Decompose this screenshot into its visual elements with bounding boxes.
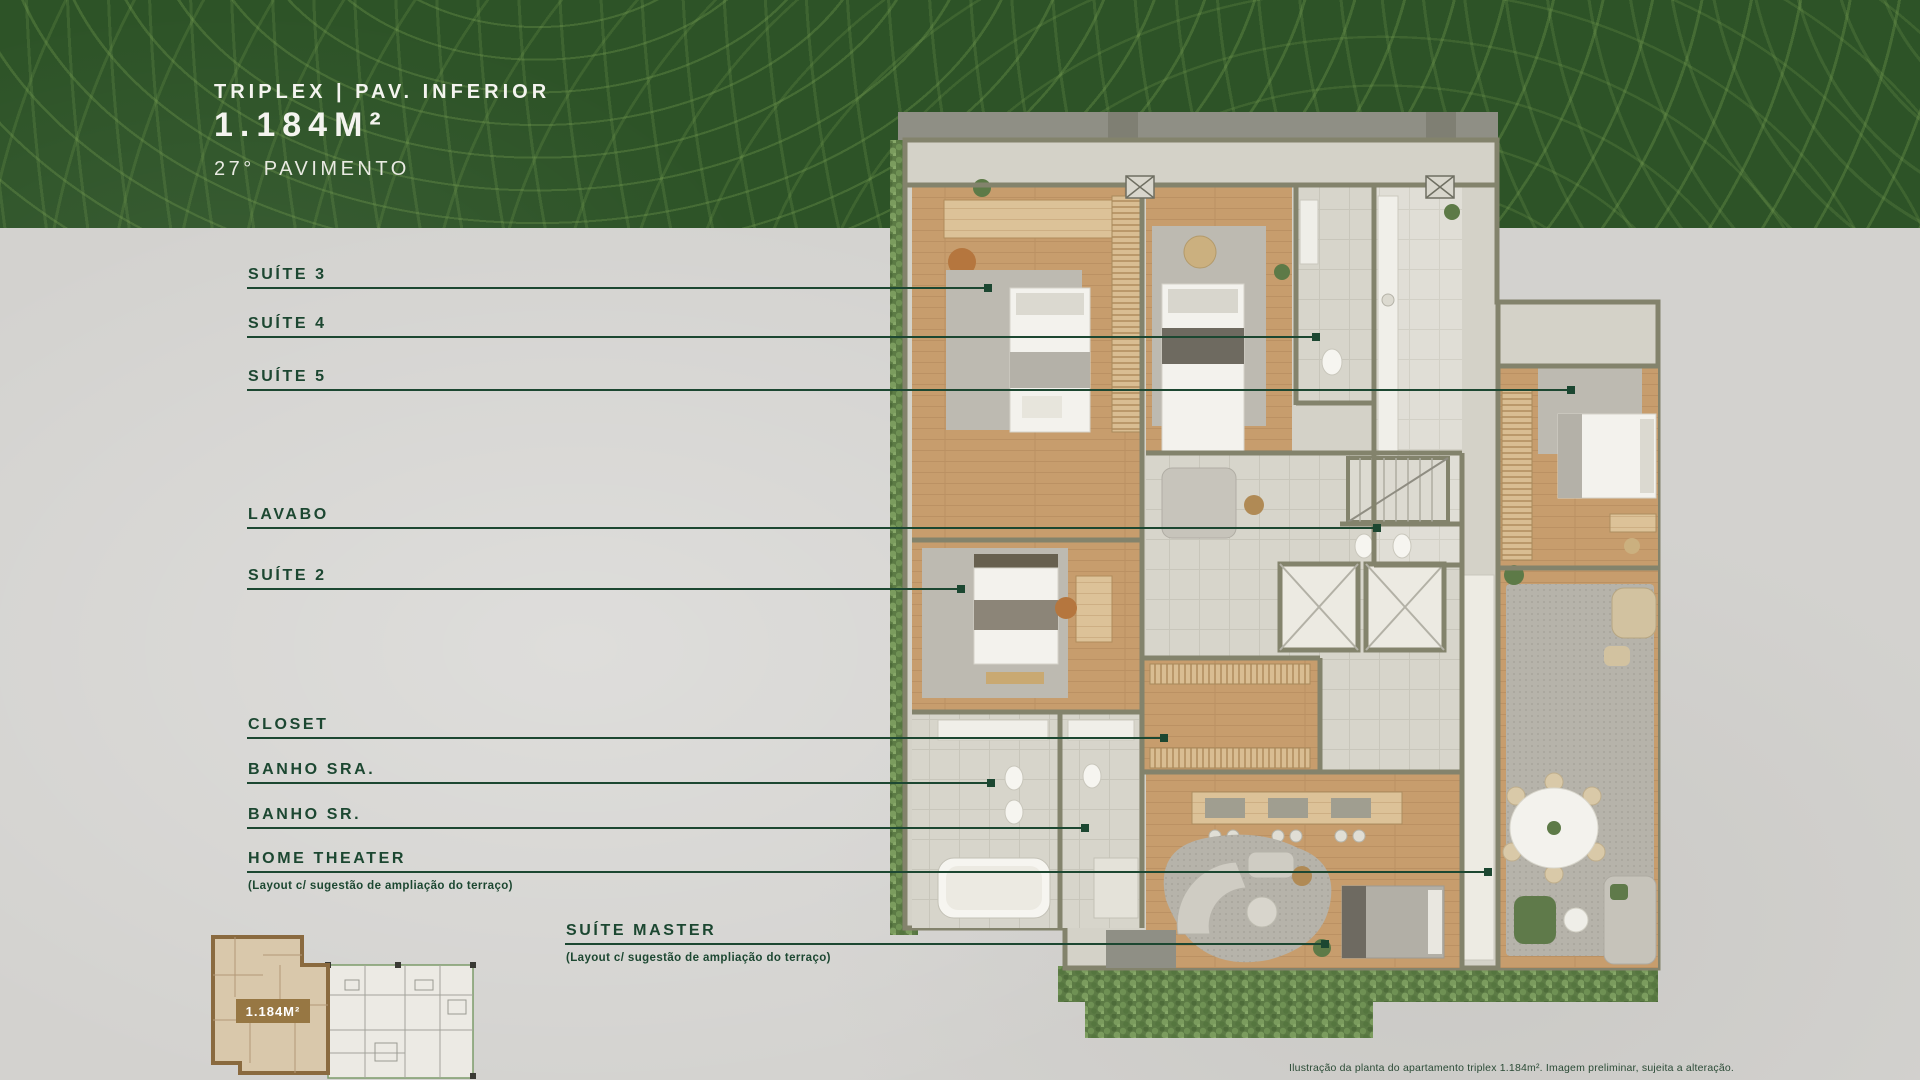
callout-note: (Layout c/ sugestão de ampliação do terr…	[248, 880, 513, 892]
page: TRIPLEX | PAV. INFERIOR 1.184M² 27° PAVI…	[0, 0, 1920, 1080]
callout-suite-3: SUÍTE 3	[247, 287, 990, 289]
leader-line	[247, 588, 963, 590]
callout-suite-4: SUÍTE 4	[247, 336, 1318, 338]
callout-label: SUÍTE 5	[248, 368, 327, 386]
disclaimer-text: Ilustração da planta do apartamento trip…	[1289, 1062, 1734, 1074]
leader-line	[565, 943, 1327, 945]
callout-suite-2: SUÍTE 2	[247, 588, 963, 590]
callout-closet: CLOSET	[247, 737, 1166, 739]
callout-label: LAVABO	[248, 506, 329, 524]
leader-line	[247, 827, 1087, 829]
leader-line	[247, 737, 1166, 739]
callout-banho-sr: BANHO SR.	[247, 827, 1087, 829]
callout-label: HOME THEATER	[248, 850, 406, 868]
callout-suite-master: SUÍTE MASTER (Layout c/ sugestão de ampl…	[565, 943, 1327, 945]
callout-note: (Layout c/ sugestão de ampliação do terr…	[566, 952, 831, 964]
callout-label: BANHO SR.	[248, 806, 361, 824]
leader-line	[247, 287, 990, 289]
floor-number: 27° PAVIMENTO	[214, 158, 410, 181]
key-plan-other-units	[325, 962, 476, 1079]
callout-home-theater: HOME THEATER (Layout c/ sugestão de ampl…	[247, 871, 1490, 873]
page-title: TRIPLEX | PAV. INFERIOR	[214, 81, 550, 104]
callout-label: SUÍTE 4	[248, 315, 327, 333]
leader-line	[247, 871, 1490, 873]
callout-label: SUÍTE MASTER	[566, 922, 716, 940]
floor-plan-illustration	[890, 105, 1662, 1045]
callout-label: SUÍTE 2	[248, 567, 327, 585]
callout-label: SUÍTE 3	[248, 266, 327, 284]
callout-banho-sra: BANHO SRA.	[247, 782, 993, 784]
key-plan-badge: 1.184M²	[246, 1004, 301, 1019]
callout-label: BANHO SRA.	[248, 761, 375, 779]
unit-area: 1.184M²	[214, 106, 388, 145]
terrace-furniture	[1464, 565, 1656, 964]
leader-line	[247, 782, 993, 784]
key-plan: 1.184M²	[205, 925, 490, 1080]
callout-lavabo: LAVABO	[247, 527, 1379, 529]
leader-line	[247, 527, 1379, 529]
leader-line	[247, 336, 1318, 338]
suite3-furniture	[944, 179, 1142, 432]
key-plan-highlighted-unit: 1.184M²	[213, 937, 328, 1073]
callout-suite-5: SUÍTE 5	[247, 389, 1573, 391]
callout-label: CLOSET	[248, 716, 329, 734]
leader-line	[247, 389, 1573, 391]
